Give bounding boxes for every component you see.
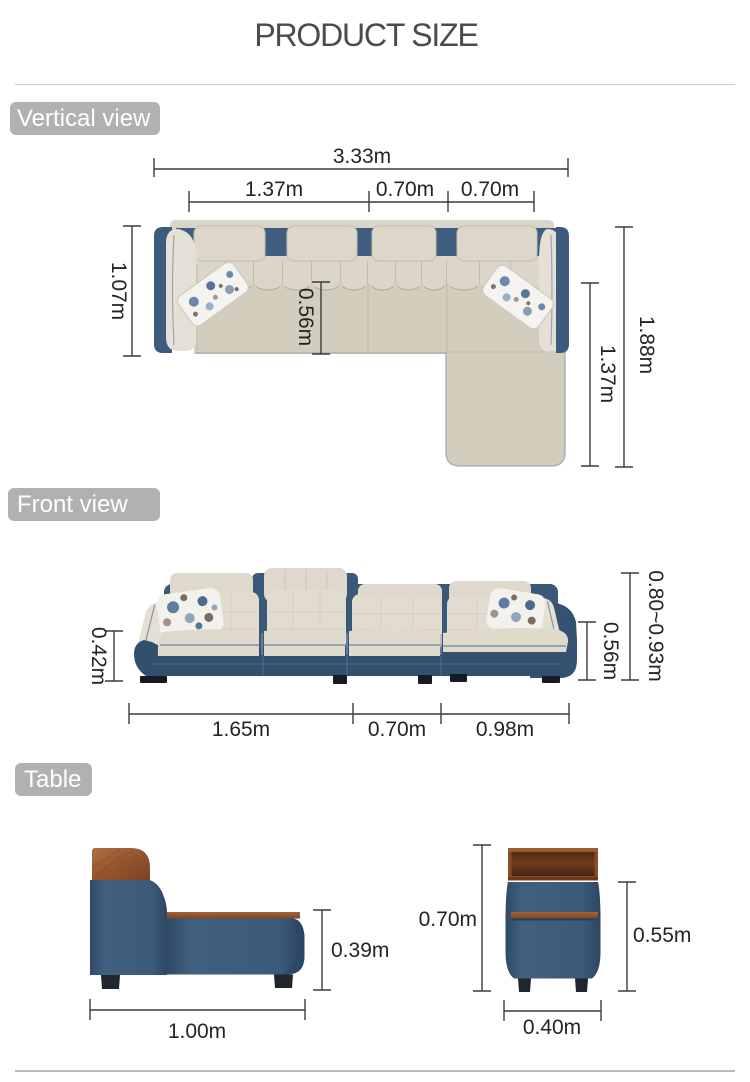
svg-text:0.70m: 0.70m: [461, 178, 519, 201]
svg-text:0.39m: 0.39m: [331, 939, 389, 962]
svg-text:0.56m: 0.56m: [599, 622, 622, 680]
svg-text:1.37m: 1.37m: [596, 345, 619, 403]
svg-text:0.70m: 0.70m: [368, 718, 426, 741]
svg-text:1.00m: 1.00m: [168, 1020, 226, 1043]
svg-text:1.37m: 1.37m: [245, 178, 303, 201]
svg-text:0.42m: 0.42m: [87, 627, 110, 685]
svg-text:1.07m: 1.07m: [107, 262, 130, 320]
svg-text:0.70m: 0.70m: [419, 908, 477, 931]
svg-text:0.55m: 0.55m: [633, 924, 691, 947]
svg-text:0.40m: 0.40m: [523, 1016, 581, 1039]
svg-text:0.98m: 0.98m: [476, 718, 534, 741]
svg-text:3.33m: 3.33m: [333, 145, 391, 168]
svg-text:0.56m: 0.56m: [294, 288, 317, 346]
svg-text:0.80~0.93m: 0.80~0.93m: [644, 570, 667, 682]
svg-text:1.88m: 1.88m: [635, 316, 658, 374]
svg-text:0.70m: 0.70m: [376, 178, 434, 201]
svg-text:1.65m: 1.65m: [212, 718, 270, 741]
